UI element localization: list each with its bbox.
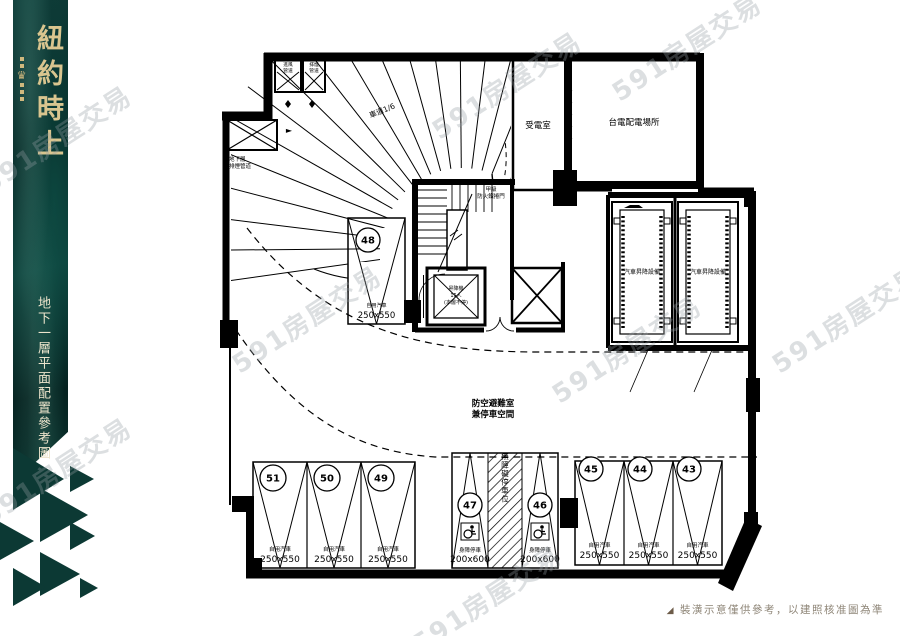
stall-type-label: 自用汽車 xyxy=(588,541,611,549)
stall-number: 43 xyxy=(682,465,696,476)
shelter-label-2: 兼停車空間 xyxy=(471,409,515,420)
wheelchair-icon xyxy=(531,523,549,540)
stall-size-label: 250x550 xyxy=(358,311,395,321)
stall-type-label: 自用汽車 xyxy=(686,541,709,549)
stall-type-label: 自用汽車 xyxy=(323,545,346,553)
parking-stall-group-right: 45自用汽車250x55044自用汽車250x55043自用汽車250x550 xyxy=(575,457,722,565)
column xyxy=(232,496,254,512)
ramp-line xyxy=(357,1,430,174)
stair-door-swing xyxy=(419,274,445,300)
triangle-decoration xyxy=(0,430,105,630)
car-lift-label: 汽車昇降設備 xyxy=(624,268,660,276)
stall-number: 51 xyxy=(266,474,280,485)
car-lift-label: 汽車昇降設備 xyxy=(690,268,726,276)
basement-exhaust-shaft xyxy=(227,120,277,150)
triangle-icon: ◢ xyxy=(667,606,675,616)
shaft-top1-label-1: 進風 xyxy=(283,61,293,68)
left-shaft-label-2: 排煙管道 xyxy=(229,162,252,170)
parking-stall-group-g48: 48自用汽車250x550 xyxy=(348,218,405,324)
ramp-line xyxy=(390,0,440,171)
column xyxy=(744,512,758,530)
wheelchair-icon xyxy=(461,523,479,540)
disclaimer-text: 裝潢示意僅供參考，以建照核准圖為準 xyxy=(680,604,884,616)
stall-number: 44 xyxy=(633,465,647,476)
stall-size-label: 250x550 xyxy=(314,555,354,565)
elevator-label-1: 昇降機 xyxy=(448,285,463,292)
car-lift: 汽車昇降設備 xyxy=(612,202,672,342)
ramp-line xyxy=(229,116,393,209)
stair-landing xyxy=(447,210,467,270)
ramp-line xyxy=(492,0,562,174)
power-room-label: 受電室 xyxy=(525,120,551,131)
ramp-slope-label: 車道1/6 xyxy=(367,100,396,119)
fire-door-note-2: 防火鐵捲門 xyxy=(477,192,505,200)
stall-type-label: 身障停車 xyxy=(529,546,552,554)
brand-crest: ♛ xyxy=(15,56,28,102)
car-lift: 汽車昇降設備 xyxy=(678,202,738,342)
column xyxy=(553,170,577,206)
crown-icon: ♛ xyxy=(17,70,27,81)
elevator-label-3: (本層不停) xyxy=(444,299,468,306)
taipower-room-label: 台電配電場所 xyxy=(608,117,660,128)
stall-type-label: 自用汽車 xyxy=(269,545,292,553)
stall-size-label: 200x600 xyxy=(520,555,560,565)
flow-arrow-icon: ► xyxy=(286,126,293,135)
stall-type-label: 自用汽車 xyxy=(377,545,400,553)
column xyxy=(404,300,421,323)
ramp-line xyxy=(472,0,495,169)
double-door-swing xyxy=(486,317,514,331)
shaft-top1-label-2: 管道 xyxy=(283,67,293,74)
stall-number: 48 xyxy=(361,236,375,247)
disclaimer: ◢裝潢示意僅供參考，以建照核准圖為準 xyxy=(667,602,884,617)
column xyxy=(220,320,238,348)
screenshot-root: 車道1/6 受電室 台電配電場所 xyxy=(0,0,900,636)
stall-size-label: 250x550 xyxy=(580,551,620,561)
floor-plan: 車道1/6 受電室 台電配電場所 xyxy=(0,0,900,636)
stall-number: 50 xyxy=(320,474,334,485)
stall-size-label: 200x600 xyxy=(450,555,490,565)
ramp-line xyxy=(203,181,385,228)
elevator-label-2: 15人 xyxy=(450,293,461,299)
parking-stall-group-left: 51自用汽車250x55050自用汽車250x55049自用汽車250x550 xyxy=(253,462,415,568)
accessible-aisle-label: 無障礙停車位 xyxy=(500,451,509,503)
stall-number: 47 xyxy=(463,501,477,512)
shaft-top2-label-2: 管道 xyxy=(309,67,319,74)
shelter-label-1: 防空避難室 xyxy=(472,398,515,409)
column xyxy=(744,193,756,207)
stall-size-label: 250x550 xyxy=(678,551,718,561)
stall-number: 45 xyxy=(584,465,598,476)
stall-size-label: 250x550 xyxy=(260,555,300,565)
ramp-line xyxy=(326,17,421,179)
vent-shaft xyxy=(512,268,562,323)
ramp-line xyxy=(194,249,382,251)
stall-type-label: 身障停車 xyxy=(459,546,482,554)
ramp-line xyxy=(460,0,462,168)
fire-door-note-1: 甲級 xyxy=(485,185,497,193)
stall-size-label: 250x550 xyxy=(629,551,669,561)
plan-caption: 地下一層平面配置參考圖 xyxy=(33,296,52,461)
stall-number: 49 xyxy=(374,474,388,485)
left-shaft-label-1: 地下層 xyxy=(229,155,246,163)
column xyxy=(746,378,760,412)
project-title: 紐約時上 xyxy=(28,24,67,164)
ramp-line xyxy=(425,0,451,169)
stall-number: 46 xyxy=(533,501,547,512)
stall-type-label: 自用汽車 xyxy=(366,302,386,309)
shaft-top2-label-1: 排煙 xyxy=(309,61,319,68)
stall-size-label: 250x550 xyxy=(368,555,408,565)
stall-type-label: 自用汽車 xyxy=(637,541,660,549)
